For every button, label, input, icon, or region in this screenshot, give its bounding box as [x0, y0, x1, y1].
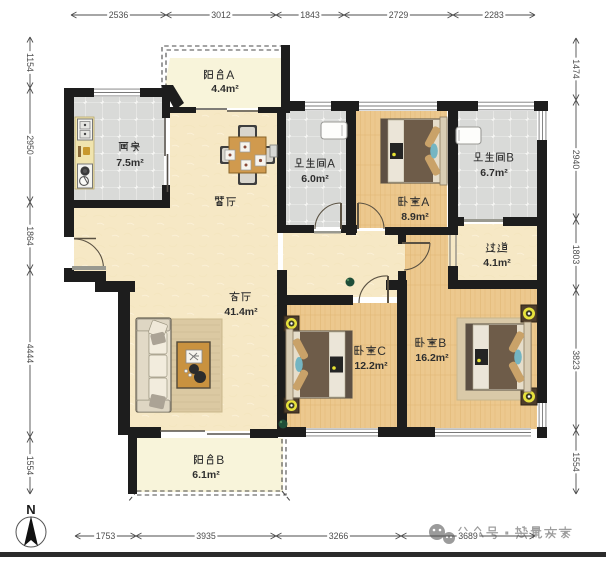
svg-text:1554: 1554	[571, 452, 581, 472]
svg-text:A: A	[421, 195, 429, 209]
svg-text:3689: 3689	[458, 531, 478, 541]
svg-text:2950: 2950	[25, 135, 35, 155]
svg-text:B: B	[438, 336, 446, 350]
svg-text:41.4m²: 41.4m²	[224, 306, 258, 318]
svg-text:A: A	[327, 158, 335, 170]
svg-text:1154: 1154	[25, 53, 35, 72]
svg-text:3266: 3266	[329, 531, 349, 541]
svg-text:4444: 4444	[25, 344, 35, 364]
svg-text:2940: 2940	[571, 150, 581, 170]
svg-text:3012: 3012	[211, 10, 231, 20]
svg-text:1554: 1554	[25, 456, 35, 476]
svg-text:3935: 3935	[196, 531, 216, 541]
svg-text:4.4m²: 4.4m²	[211, 83, 239, 95]
svg-text:12.2m²: 12.2m²	[354, 360, 388, 372]
svg-text:1474: 1474	[571, 59, 581, 79]
svg-text:1864: 1864	[25, 226, 35, 246]
svg-text:2729: 2729	[389, 10, 409, 20]
svg-text:2536: 2536	[109, 10, 129, 20]
svg-text:1803: 1803	[571, 245, 581, 265]
svg-text:1843: 1843	[300, 10, 320, 20]
svg-text:3823: 3823	[571, 350, 581, 370]
svg-text:7.5m²: 7.5m²	[116, 157, 144, 169]
svg-text:4.1m²: 4.1m²	[483, 257, 511, 269]
svg-text:1753: 1753	[96, 531, 116, 541]
svg-text:2283: 2283	[484, 10, 504, 20]
svg-text:A: A	[226, 68, 234, 82]
svg-text:16.2m²: 16.2m²	[415, 352, 449, 364]
svg-text:N: N	[26, 502, 35, 517]
svg-text:6.0m²: 6.0m²	[301, 173, 329, 185]
svg-text:B: B	[506, 152, 514, 164]
svg-text:6.1m²: 6.1m²	[192, 469, 220, 481]
svg-text:B: B	[216, 453, 224, 467]
svg-text:C: C	[377, 344, 386, 358]
svg-text:6.7m²: 6.7m²	[480, 167, 508, 179]
svg-text:8.9m²: 8.9m²	[401, 211, 429, 223]
